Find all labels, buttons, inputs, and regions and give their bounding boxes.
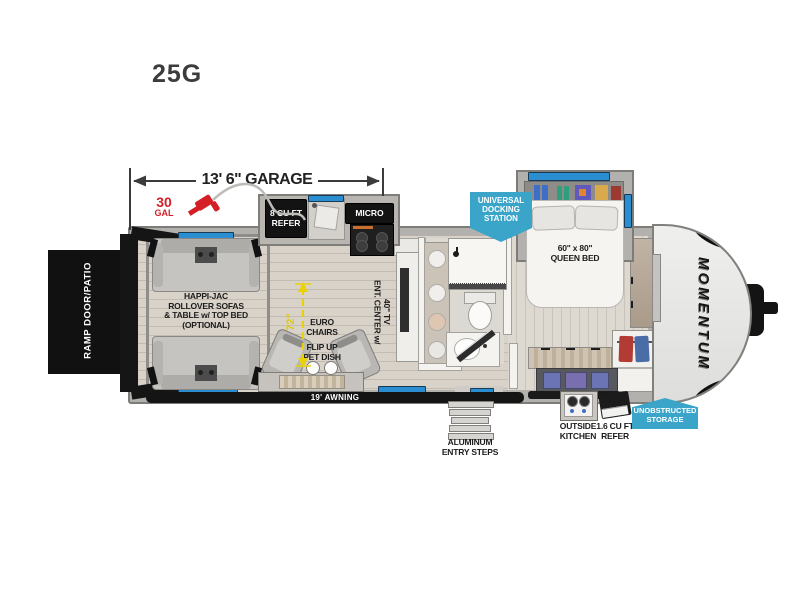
shelf-item: [557, 186, 562, 200]
sofa-rear: [152, 336, 260, 390]
wood-countertop: [279, 375, 345, 389]
shelf-item: [575, 185, 591, 201]
bathroom-wall: [510, 344, 517, 388]
ramp-door-label: RAMP DOOR/PATIO: [83, 246, 94, 376]
hitch-bar: [758, 302, 778, 314]
shelf-item: [534, 185, 540, 200]
floorplan-canvas: 25G RAMP DOOR/PATIO HAPPI-JAC ROLLOVER S…: [0, 0, 800, 600]
toilet-icon: [468, 301, 492, 330]
sink-icon: [314, 205, 340, 231]
compartment-panel: [565, 372, 587, 389]
width-dimension-label: 72": [285, 309, 297, 335]
hanging-clothes-red: [619, 336, 634, 362]
pillow: [532, 205, 576, 230]
cupholder: [209, 252, 214, 257]
compartment-panel: [543, 372, 561, 389]
cupholder-console: [195, 365, 217, 381]
queen-bed: 60" x 80" QUEEN BED: [526, 200, 624, 308]
pillow: [575, 205, 619, 230]
fuel-unit: GAL: [150, 209, 178, 218]
pet-dish-label: FLIP UP PET DISH: [294, 343, 350, 362]
bed-slide-window-top: [528, 172, 610, 181]
cupholder: [198, 370, 203, 375]
drawer-pull: [541, 348, 550, 350]
shelf-item: [564, 186, 569, 200]
momentum-logo: MOMENTUM: [692, 239, 712, 389]
outside-refer-icon: [598, 391, 631, 419]
garage-dimension-label: 13' 6" GARAGE: [196, 171, 318, 189]
refer-door: [601, 405, 628, 418]
step: [448, 401, 494, 408]
step: [451, 417, 489, 424]
bed-window-right: [624, 194, 632, 228]
entry-steps-label: ALUMINUM ENTRY STEPS: [434, 438, 506, 457]
knob: [570, 409, 574, 413]
pet-dish-icon: [324, 361, 338, 375]
stove-icon: [350, 224, 394, 256]
ent-center-label: ENT. CENTER w/ 40" TV: [372, 262, 394, 362]
step: [449, 425, 491, 432]
faucet-icon: [483, 344, 487, 348]
shower-door-track: [449, 283, 506, 289]
shelf-item-detail: [579, 189, 586, 196]
model-label: 25G: [152, 60, 232, 89]
outside-refer-label: 1.6 CU FT REFER: [594, 422, 636, 441]
drawer-pull: [591, 348, 600, 350]
fuel-value: 30: [150, 195, 178, 209]
hanging-clothes-blue: [634, 336, 649, 363]
drawer-pull: [566, 348, 575, 350]
fuel-pump-icon: [186, 193, 221, 224]
queen-bed-label: 60" x 80" QUEEN BED: [529, 244, 621, 263]
cupholder: [209, 370, 214, 375]
showerhead-arm: [456, 247, 458, 255]
kitchen-sink-counter: [308, 198, 345, 240]
drawer-pull: [631, 277, 633, 284]
bathroom-wall: [419, 238, 424, 364]
step: [449, 409, 491, 416]
storage-bin: [428, 250, 446, 268]
burner: [567, 396, 578, 407]
shelf-item: [595, 185, 608, 201]
shelf-item: [611, 186, 621, 200]
shelf-item: [542, 185, 548, 200]
knob: [582, 409, 586, 413]
microwave-badge: MICRO: [345, 203, 394, 224]
storage-bin: [428, 284, 446, 302]
euro-chairs-label: EURO CHAIRS: [300, 318, 344, 337]
compartment-panel: [591, 372, 609, 389]
kitchen-window: [308, 195, 344, 202]
drawer-pull: [631, 301, 633, 308]
outside-kitchen-compartment: [536, 368, 618, 392]
storage-bin: [428, 313, 446, 331]
shower: [448, 238, 507, 290]
sofa-front: [152, 238, 260, 292]
rear-dresser: [528, 347, 612, 369]
entry-steps-icon: [448, 400, 492, 440]
cupholder: [198, 252, 203, 257]
faucet-icon: [312, 203, 317, 208]
burner: [376, 240, 388, 252]
stove-vent: [353, 226, 373, 229]
outside-kitchen-icon: [560, 391, 598, 421]
front-window: [652, 254, 661, 322]
fuel-capacity-label: 30 GAL: [150, 195, 178, 218]
storage-bin: [428, 341, 446, 359]
pet-dish-icon: [306, 361, 320, 375]
ramp-door: RAMP DOOR/PATIO: [48, 250, 128, 374]
front-cap: MOMENTUM: [652, 224, 752, 404]
ramp-frame: [120, 234, 138, 392]
cupholder-console: [195, 247, 217, 263]
garage-option-label: HAPPI-JAC ROLLOVER SOFAS & TABLE w/ TOP …: [156, 292, 256, 330]
refrigerator-badge: 8 CU FT REFER: [265, 199, 307, 238]
burner: [356, 240, 368, 252]
tv-icon: [400, 268, 409, 332]
burner: [579, 396, 590, 407]
media-cabinet: [258, 372, 364, 392]
